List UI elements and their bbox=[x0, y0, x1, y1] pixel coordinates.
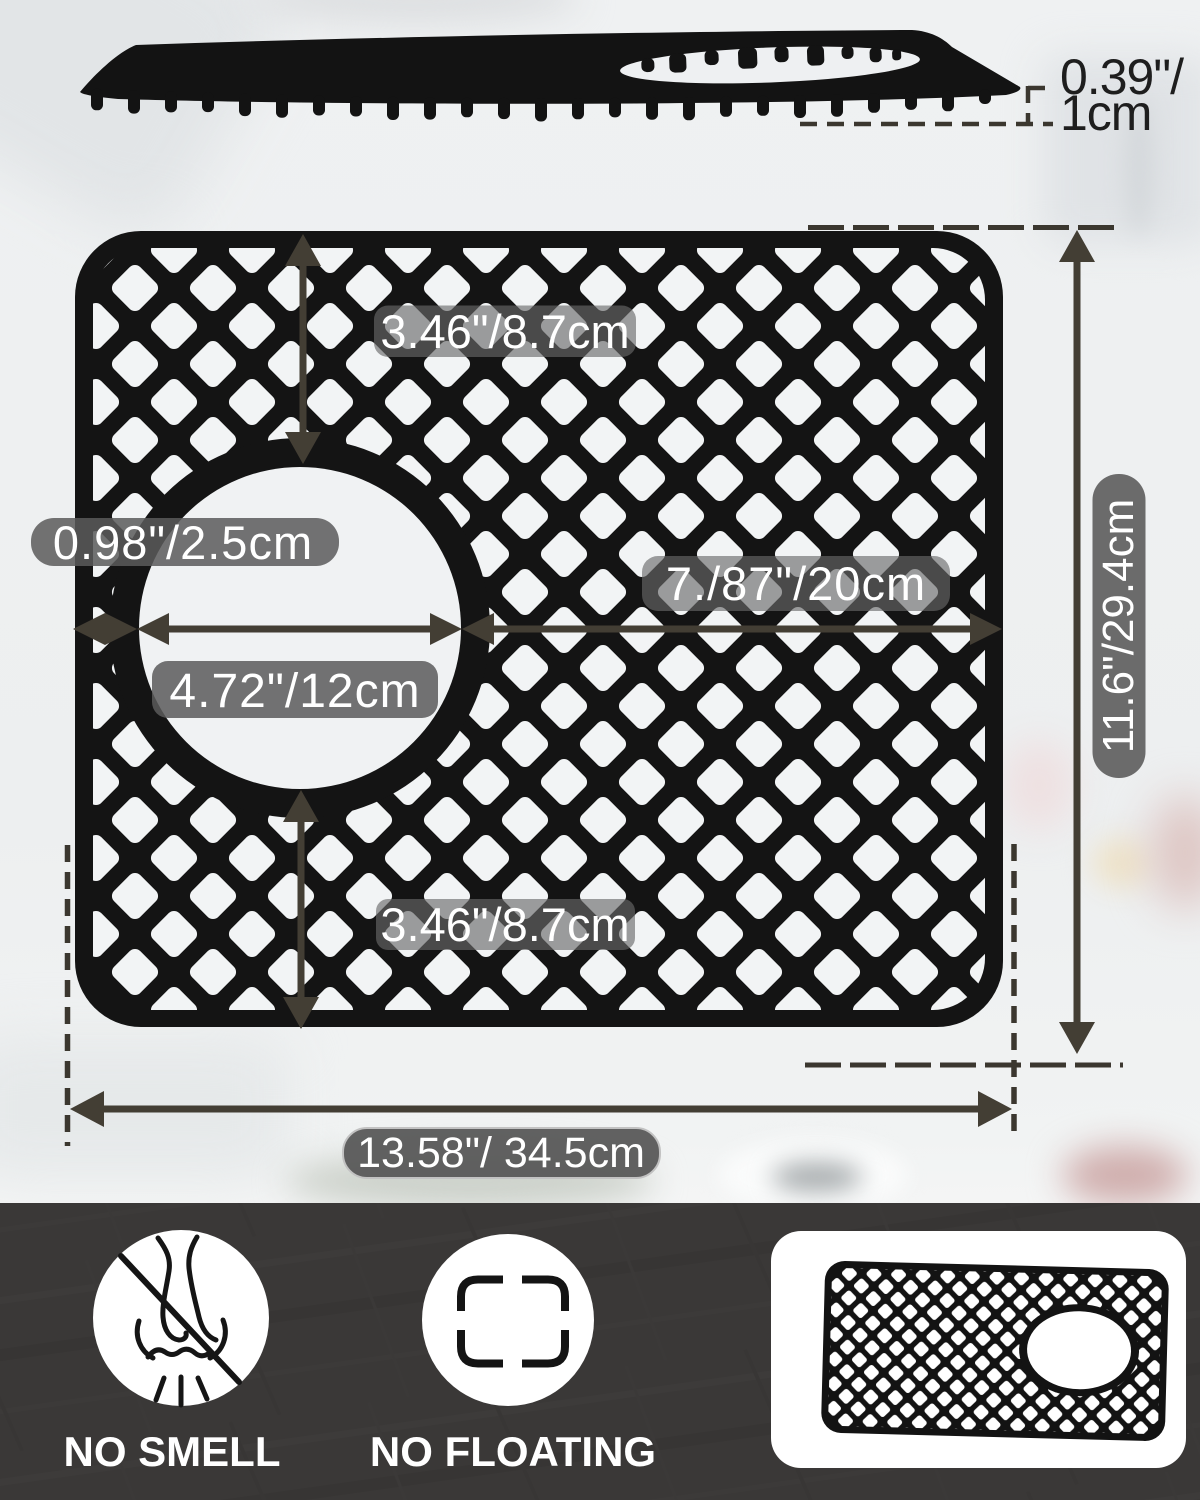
svg-text:4.72"/12cm: 4.72"/12cm bbox=[169, 665, 420, 718]
svg-text:NO SMELL: NO SMELL bbox=[64, 1428, 281, 1475]
svg-text:7./87"/20cm: 7./87"/20cm bbox=[666, 557, 926, 610]
svg-text:0.98"/2.5cm: 0.98"/2.5cm bbox=[53, 516, 313, 569]
svg-text:3.46"/8.7cm: 3.46"/8.7cm bbox=[380, 898, 629, 951]
svg-text:1cm: 1cm bbox=[1060, 85, 1151, 141]
svg-text:13.58"/ 34.5cm: 13.58"/ 34.5cm bbox=[357, 1129, 645, 1177]
svg-text:11.6"/29.4cm: 11.6"/29.4cm bbox=[1094, 499, 1143, 754]
svg-text:NO FLOATING: NO FLOATING bbox=[370, 1428, 656, 1475]
svg-text:3.46"/8.7cm: 3.46"/8.7cm bbox=[380, 305, 629, 358]
